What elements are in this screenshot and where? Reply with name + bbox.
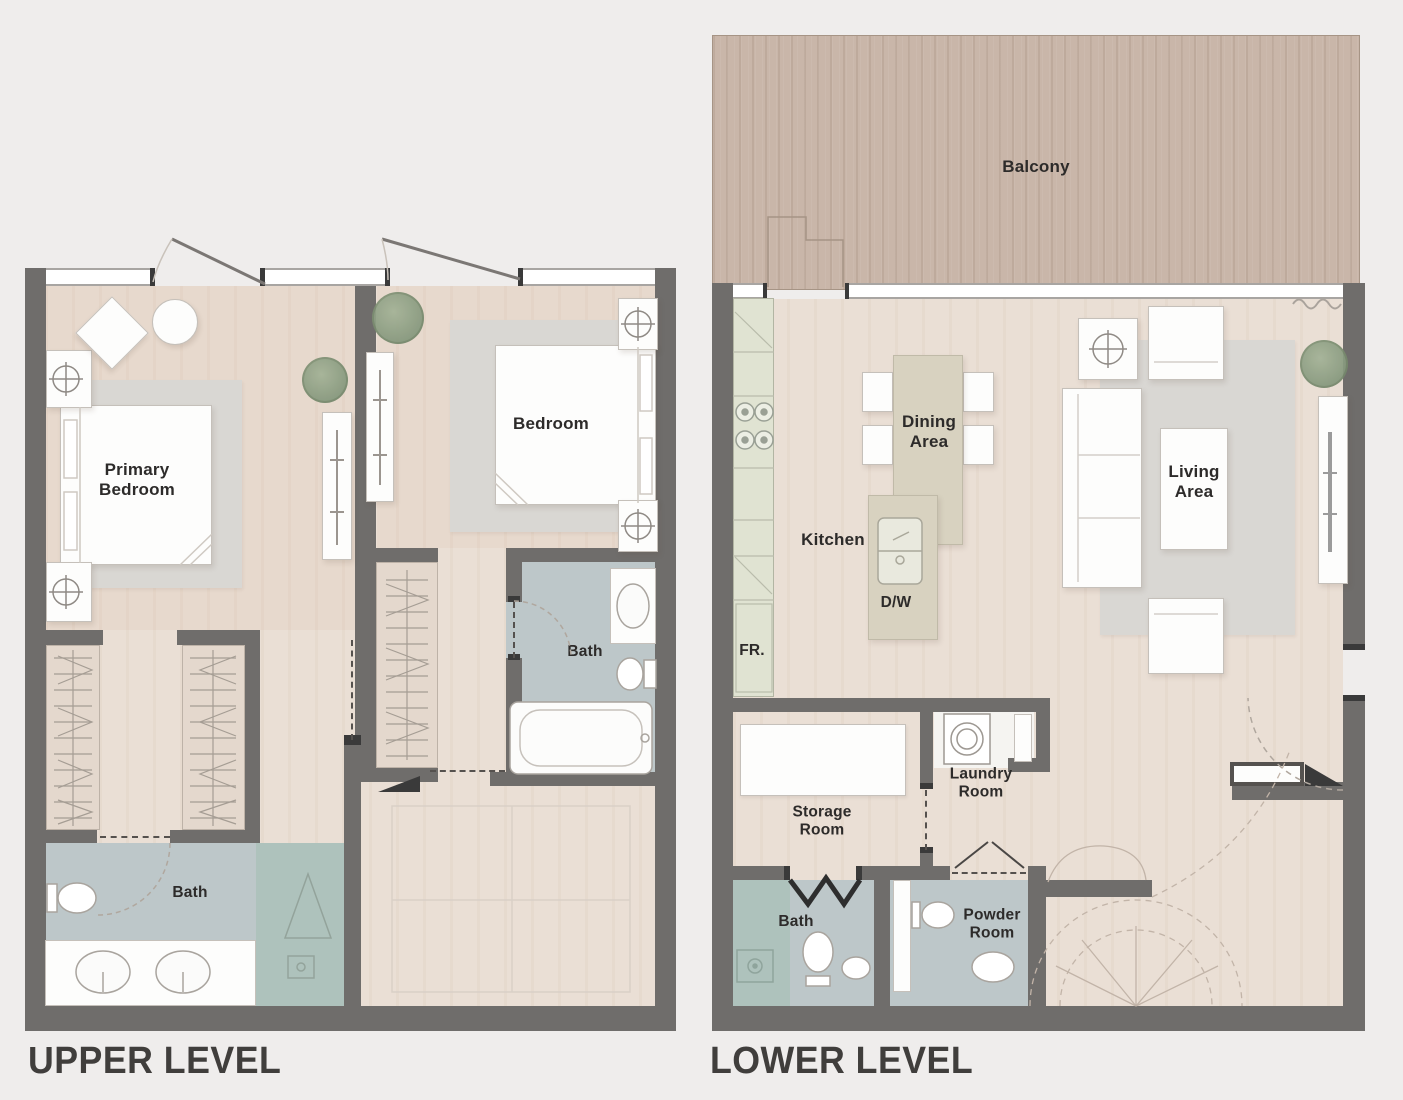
door-opening bbox=[952, 872, 1026, 874]
lower-level-title: LOWER LEVEL bbox=[710, 1040, 973, 1083]
wall bbox=[712, 866, 788, 880]
wall bbox=[712, 698, 1048, 712]
door-jamb bbox=[1343, 695, 1365, 701]
label-powder-room: Powder Room bbox=[963, 907, 1020, 944]
wall bbox=[1028, 866, 1046, 880]
door-jamb bbox=[784, 866, 790, 880]
lower-level-plan: Balcony Dining Area Kitchen D/W FR. Livi… bbox=[0, 0, 700, 1100]
dining-chair bbox=[963, 372, 994, 412]
armchair bbox=[1148, 306, 1224, 380]
label-kitchen: Kitchen bbox=[801, 530, 865, 550]
side-table bbox=[1078, 318, 1138, 380]
label-balcony: Balcony bbox=[1002, 157, 1070, 177]
door-opening bbox=[925, 790, 927, 850]
wall bbox=[920, 712, 933, 783]
lower-bath-shower-floor bbox=[733, 880, 790, 1006]
window-wall bbox=[733, 283, 767, 299]
storage-shelf bbox=[740, 724, 906, 796]
wall bbox=[862, 866, 950, 880]
label-dining-area: Dining Area bbox=[902, 412, 956, 452]
plant-icon bbox=[1300, 340, 1348, 388]
kitchen-counter bbox=[733, 298, 774, 697]
door-jamb bbox=[763, 283, 767, 299]
laundry-cabinet bbox=[1014, 714, 1032, 762]
wall bbox=[1028, 880, 1152, 897]
wall bbox=[1028, 880, 1046, 1006]
upper-level-title: UPPER LEVEL bbox=[28, 1040, 281, 1083]
window-wall bbox=[845, 283, 1343, 299]
label-bath-lower: Bath bbox=[778, 913, 813, 931]
label-living-area: Living Area bbox=[1168, 462, 1219, 502]
dining-chair bbox=[862, 425, 893, 465]
dining-chair bbox=[963, 425, 994, 465]
label-fridge: FR. bbox=[739, 642, 765, 660]
armchair bbox=[1148, 598, 1224, 674]
wall bbox=[712, 1006, 1365, 1031]
label-dishwasher: D/W bbox=[881, 594, 912, 612]
label-laundry-room: Laundry Room bbox=[950, 766, 1013, 803]
door-jamb bbox=[1343, 644, 1365, 650]
entry-console bbox=[1234, 766, 1300, 782]
dining-chair bbox=[862, 372, 893, 412]
tv-console bbox=[1318, 396, 1348, 584]
bathroom-vanity bbox=[893, 880, 911, 992]
wall bbox=[712, 283, 733, 1031]
sofa bbox=[1062, 388, 1142, 588]
wall bbox=[874, 880, 890, 1006]
door-jamb bbox=[845, 283, 849, 299]
door-jamb bbox=[856, 866, 862, 880]
floorplan-page: { "page": { "upper_title": "UPPER LEVEL"… bbox=[0, 0, 1403, 1100]
door-jamb bbox=[920, 783, 933, 789]
wall bbox=[1343, 695, 1365, 1031]
kitchen-island bbox=[868, 495, 938, 640]
label-storage-room: Storage Room bbox=[792, 804, 851, 841]
